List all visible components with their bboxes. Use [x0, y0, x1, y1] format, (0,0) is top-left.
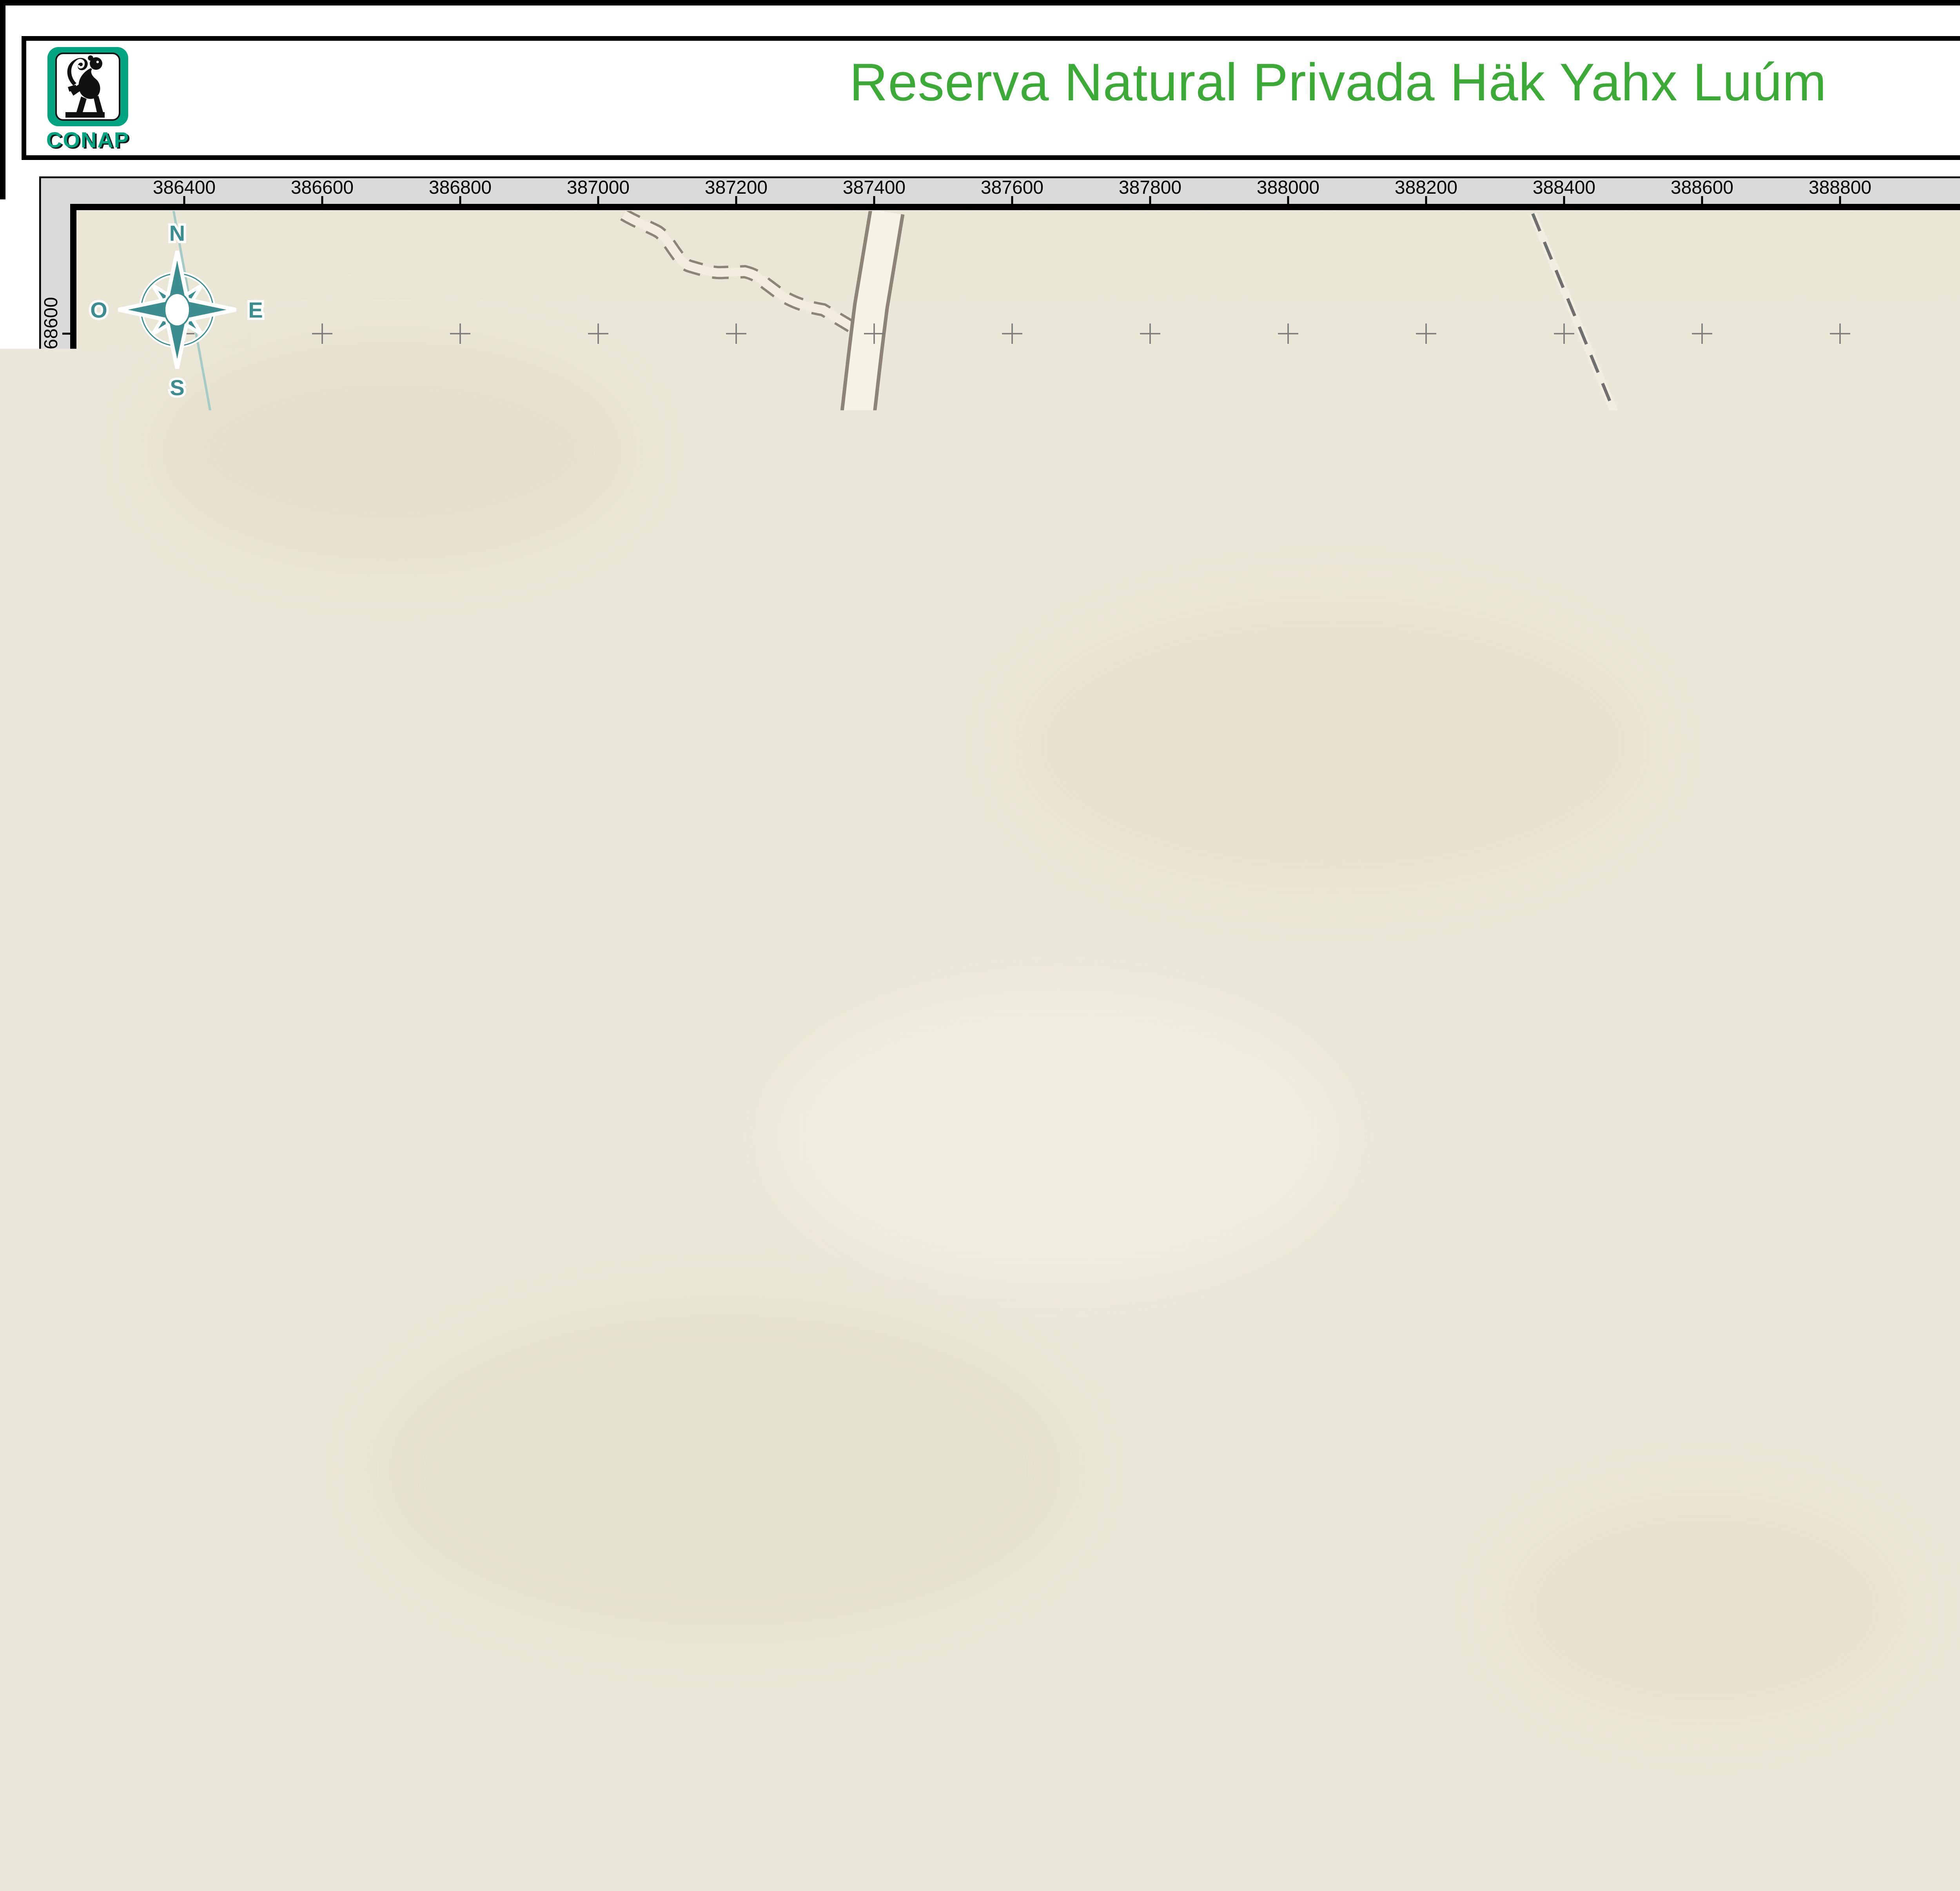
svg-text:387800: 387800	[1119, 177, 1181, 198]
svg-text:386600: 386600	[291, 1843, 354, 1864]
svg-text:1768600: 1768600	[41, 297, 62, 371]
svg-text:Reserva: Reserva	[939, 970, 1005, 992]
svg-text:1768400: 1768400	[41, 427, 62, 500]
svg-text:386800: 386800	[429, 177, 492, 198]
svg-text:388400: 388400	[1533, 177, 1595, 198]
compass-w-label: O	[90, 298, 107, 322]
main-map-canvas: 3864003864003866003866003868003868003870…	[39, 176, 1960, 1871]
svg-text:387000: 387000	[567, 177, 630, 198]
svg-text:388800: 388800	[1809, 177, 1871, 198]
svg-text:387600: 387600	[981, 177, 1044, 198]
svg-text:388800: 388800	[1809, 1843, 1871, 1864]
scale-label-022: 0.22	[292, 1720, 333, 1744]
svg-text:388200: 388200	[1395, 177, 1457, 198]
svg-text:388000: 388000	[1257, 177, 1319, 198]
svg-text:1766600: 1766600	[41, 1595, 62, 1668]
svg-text:388200: 388200	[1395, 1843, 1457, 1864]
svg-text:386400: 386400	[153, 1843, 216, 1864]
map-sheet: CONAP Reserva Natural Privada Häk Yahx L…	[0, 0, 1960, 1891]
svg-text:387400: 387400	[843, 177, 906, 198]
svg-text:387800: 387800	[1119, 1843, 1181, 1864]
compass-n-label: N	[169, 221, 185, 245]
svg-text:387200: 387200	[705, 1843, 768, 1864]
scale-label-044: 0.44 Kilómetros	[441, 1720, 588, 1744]
svg-text:387200: 387200	[705, 177, 768, 198]
department-name-label: HUEHUETENANGO	[817, 1005, 1226, 1038]
compass-s-label: S	[170, 375, 184, 400]
svg-text:Yahx Luúm: Yahx Luúm	[927, 1066, 1018, 1089]
svg-text:1767000: 1767000	[41, 1335, 62, 1409]
header: CONAP Reserva Natural Privada Häk Yahx L…	[22, 36, 1960, 160]
conap-wordmark: CONAP	[46, 127, 130, 153]
main-map: 3864003864003866003866003868003868003870…	[39, 176, 1960, 1871]
scale-label-011: 0.11	[217, 1720, 256, 1744]
svg-text:386800: 386800	[429, 1843, 492, 1864]
svg-text:388400: 388400	[1533, 1843, 1595, 1864]
svg-text:1767200: 1767200	[41, 1206, 62, 1279]
svg-text:388600: 388600	[1671, 1843, 1733, 1864]
compass-e-label: E	[248, 298, 263, 322]
svg-text:1768000: 1768000	[41, 687, 62, 760]
page-title: Reserva Natural Privada Häk Yahx Luúm	[26, 41, 1960, 123]
svg-text:1766400: 1766400	[41, 1725, 62, 1798]
map-content: ORTE Reserva Natural Privada Häk Yahx Lu…	[63, 191, 1960, 1831]
svg-text:1767400: 1767400	[41, 1076, 62, 1149]
svg-text:387400: 387400	[843, 1843, 906, 1864]
svg-text:388000: 388000	[1257, 1843, 1319, 1864]
svg-text:387600: 387600	[981, 1843, 1044, 1864]
svg-text:386600: 386600	[291, 177, 354, 198]
svg-text:387000: 387000	[567, 1843, 630, 1864]
svg-text:1767800: 1767800	[41, 816, 62, 890]
svg-text:1766800: 1766800	[41, 1465, 62, 1539]
svg-text:386400: 386400	[153, 177, 216, 198]
scale-label-0: 0	[155, 1720, 167, 1744]
svg-text:1767600: 1767600	[41, 946, 62, 1019]
svg-text:388600: 388600	[1671, 177, 1733, 198]
svg-text:1768200: 1768200	[41, 557, 62, 630]
